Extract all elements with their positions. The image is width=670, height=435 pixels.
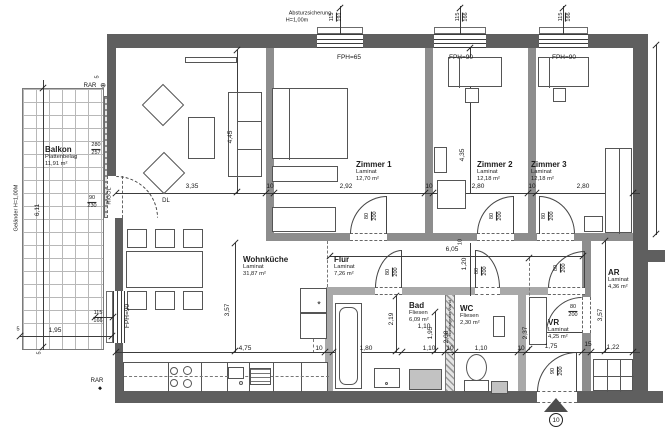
dining-chair-3 [183,229,203,248]
room-label-zimmer-2: Zimmer 2Laminat12,18 m² [477,160,513,183]
dim-2-80-a: 2,80 [472,184,485,191]
label-rar-bottom: RAR [91,378,104,384]
dim-1-95-bad: 1,95 [428,327,435,340]
dim-2-19: 2,19 [389,313,396,326]
dining-table [126,251,203,288]
dim-4-45: 4,45 [228,131,235,144]
label-rar-top: RAR [84,83,97,89]
coffee-table [188,117,215,159]
wall-flur-south-3 [500,287,548,295]
dim-tick-33 [652,230,659,237]
toilet-bowl [466,354,487,381]
bed-zimmer3 [538,57,589,87]
door-leaf-entrance [576,352,577,392]
wc-cabinet [493,316,505,337]
sideboard [185,57,237,63]
wall-flur-north-3 [514,233,537,241]
dim-2-08: 2,08 [444,331,451,344]
dim-line-1-95-balkon [20,336,112,337]
wall-exterior-left-mid [115,218,123,291]
room-label-ar: ARLaminat4,36 m² [608,268,629,291]
dim-5-c: 5 [37,351,43,354]
door-opening-vr-ar [582,297,591,333]
dining-chair-2 [155,229,175,248]
ar-shelves [593,359,633,391]
room-label-vr: VRLaminat4,25 m² [548,318,569,341]
label-fph-90-z3: FPH=90 [552,55,576,62]
door-opening-zimmer1 [350,233,387,241]
armchair-2 [143,152,185,194]
dining-chair-1 [127,229,147,248]
door-opening-zimmer2 [477,233,514,241]
nightstand-zimmer3 [553,88,566,102]
dim-1-20: 1,20 [462,258,469,271]
dim-1-75: 1,75 [545,344,558,351]
dim-6-05: 6,05 [446,247,459,254]
dim-6-11: 6,11 [35,204,42,216]
stove-burner-1 [170,367,178,375]
room-label-zimmer-3: Zimmer 3Laminat12,18 m² [531,160,567,183]
dim-balkon-parapet: 280257 [91,142,100,156]
washbasin-drain [385,382,388,385]
dim-1-10-b: 1,10 [475,346,488,353]
washing-machine [300,288,327,313]
dim-window-z2: 115166 [455,12,469,21]
rar-marker-bottom-icon: ◆ [98,387,102,392]
dim-line-3-57-right [605,241,606,352]
dim-2-92: 2,92 [340,184,353,191]
dim-line-6-11 [43,80,44,350]
bed-zimmer1 [272,88,348,159]
stove-burner-3 [170,379,178,387]
dresser-zimmer1 [272,166,338,182]
window-zimmer1 [317,34,363,48]
dim-tick-22 [233,188,240,195]
label-fph-90-left: FPH=90 [125,304,132,328]
nightstand-zimmer2 [465,88,479,103]
wall-zimmer1-zimmer2 [425,48,433,241]
room-label-zimmer-1: Zimmer 1Laminat12,70 m² [356,160,392,183]
dim-10-d: 10 [315,346,322,353]
wall-flur-south-1 [326,287,375,295]
dining-chair-5 [155,291,175,310]
kitchen-sink [228,367,244,379]
dim-door-balkon: 90230 [87,195,96,209]
dim-10-g: 10 [458,239,464,245]
cupboard-zimmer1 [272,207,336,232]
dim-3-57-left: 3,57 [225,304,232,317]
dim-line-6-05 [330,256,583,257]
dim-line-3-57-left [235,243,236,352]
room-label-wohnkueche: WohnkücheLaminat31,87 m² [243,255,288,278]
wardrobe-zimmer3 [605,148,632,233]
wardrobe-zimmer2 [434,147,447,173]
dim-1-80: 1,80 [360,346,373,353]
dim-window-z1: 115191 [329,12,343,21]
door-leaf-zimmer2 [513,196,514,234]
dim-5-a: 5 [95,75,101,78]
dim-door-vr-ar: 80200 [568,304,577,318]
door-leaf-zimmer1 [386,196,387,234]
dim-door-bad: 80200 [385,267,399,276]
boundary-wohnkueche-flur [327,241,328,287]
dim-door-wc: 80200 [474,266,488,275]
window-zimmer2 [434,34,486,48]
dim-2-80-b: 2,80 [577,184,590,191]
kitchen-faucet [239,381,243,385]
wc-shaft [491,381,508,394]
symbol-asterisk: * [317,301,321,310]
entrance-number-badge: 10 [549,413,563,427]
dining-chair-6 [183,291,203,310]
dim-door-z1: 80200 [364,211,378,220]
entrance-arrow-icon [544,398,568,412]
dim-4-35: 4,35 [460,149,467,162]
note-absturzsicherung-line2: H=1,00m [286,18,308,24]
door-leaf-zimmer3 [539,196,540,234]
stove-burner-4 [183,379,192,388]
dim-line-2-19 [396,296,397,352]
kitchen-counter [123,362,328,391]
dim-3-35: 3,35 [186,184,199,191]
label-fph-90-z2: FPH=90 [449,55,473,62]
room-label-flur: FlurLaminat7,26 m² [334,255,355,278]
dim-line-lower-chain [116,352,640,353]
dim-15: 15 [584,342,591,349]
dim-5-b: 5 [16,327,19,333]
dim-4-75: 4,75 [239,346,252,353]
note-absturzsicherung-line1: Absturzsicherung [289,11,332,17]
dim-1-95-balkon: 1,95 [49,328,62,335]
dim-tick-27 [231,347,238,354]
vr-wardrobe [529,297,547,345]
door-opening-zimmer3 [537,233,574,241]
toilet-tank [464,380,489,392]
room-label-balkon: BalkonPlattenbelag11,91 m² [45,145,77,168]
room-label-wc: WCFliesen2,30 m² [460,304,480,327]
door-opening-wc [475,287,500,295]
wall-exterior-bottom [115,391,663,403]
door-opening-flur-vr [548,287,585,295]
dim-door-flur-vr: 80200 [553,263,567,272]
armchair-1 [142,84,184,126]
bed-zimmer2 [448,57,502,87]
rar-marker-top-icon: ⊕ [100,83,106,90]
dim-door-z3: 80200 [541,211,555,220]
balcony-tile-grid [22,88,104,350]
bath-vanity [409,369,442,390]
stove-burner-2 [183,366,192,375]
wall-flur-north-1 [274,233,350,241]
wall-zimmer2-zimmer3 [528,48,536,241]
washbasin [374,368,400,388]
label-gelaender: Geländer H=1,00M [14,185,20,232]
label-fph-65: FPH=65 [337,55,361,62]
washer-cabinet [300,313,327,339]
dim-window-z3: 115166 [558,12,572,21]
dim-2-37: 2,37 [523,327,530,340]
wall-stub-right [648,250,665,262]
dim-line-outer-right [656,45,657,235]
dim-door-z2: 80200 [489,211,503,220]
room-label-bad: BadFliesen6,09 m² [409,301,429,324]
wall-wc-vr [518,295,526,391]
cabinet-zimmer3 [584,216,603,232]
dim-3-57-right: 3,57 [598,309,605,322]
dim-line-upper-chain [116,193,640,194]
wall-flur-south-2 [402,287,475,295]
floor-plan: 10 BalkonPlattenbelag11,91 m²WohnkücheLa… [0,0,670,435]
dim-door-entrance: 90200 [550,366,564,375]
bathtub [335,303,362,389]
door-leaf-flur-vr [584,251,585,288]
wall-exterior-left-upper [107,34,116,176]
dim-line-1-20 [470,243,471,296]
desk-zimmer2 [437,180,466,209]
window-zimmer3 [539,34,588,48]
dishwasher [250,368,271,385]
label-dl: DL [162,198,170,204]
dim-extension-washer [313,339,314,353]
